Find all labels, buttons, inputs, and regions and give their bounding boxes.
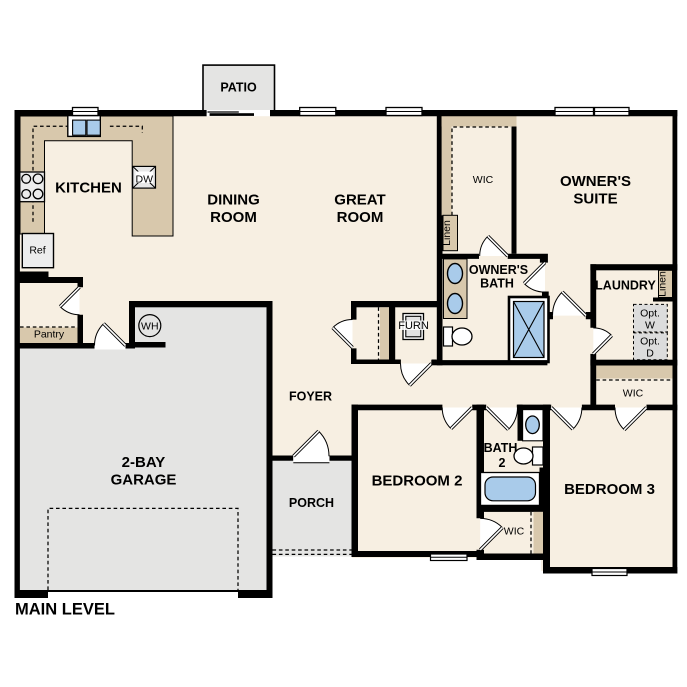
svg-text:DINING: DINING xyxy=(207,192,260,209)
svg-text:MAIN LEVEL: MAIN LEVEL xyxy=(15,601,115,619)
svg-text:GARAGE: GARAGE xyxy=(111,472,177,489)
svg-text:FURN: FURN xyxy=(398,320,429,332)
svg-text:PORCH: PORCH xyxy=(289,496,334,510)
svg-text:Ref: Ref xyxy=(29,245,45,257)
svg-text:SUITE: SUITE xyxy=(573,191,617,208)
svg-text:KITCHEN: KITCHEN xyxy=(55,180,122,197)
svg-text:GREAT: GREAT xyxy=(334,192,385,209)
svg-text:WH: WH xyxy=(141,321,159,333)
svg-text:LAUNDRY: LAUNDRY xyxy=(595,279,656,293)
svg-text:OWNER'S: OWNER'S xyxy=(469,263,528,277)
svg-text:Linen: Linen xyxy=(657,271,669,297)
svg-text:FOYER: FOYER xyxy=(289,390,332,404)
svg-text:ROOM: ROOM xyxy=(210,209,257,226)
svg-text:Pantry: Pantry xyxy=(34,329,65,341)
svg-text:Opt.: Opt. xyxy=(640,336,660,348)
svg-text:PATIO: PATIO xyxy=(220,81,257,95)
svg-text:WIC: WIC xyxy=(473,174,494,186)
svg-text:2: 2 xyxy=(499,456,506,470)
svg-text:W: W xyxy=(645,320,655,332)
svg-text:BEDROOM 3: BEDROOM 3 xyxy=(564,481,655,498)
svg-text:ROOM: ROOM xyxy=(337,209,384,226)
svg-text:WIC: WIC xyxy=(504,526,525,538)
svg-text:WIC: WIC xyxy=(623,388,644,400)
svg-text:BATH: BATH xyxy=(484,441,518,455)
svg-text:BEDROOM 2: BEDROOM 2 xyxy=(372,473,463,490)
svg-text:Opt.: Opt. xyxy=(640,308,660,320)
svg-text:D: D xyxy=(646,348,654,360)
svg-text:Linen: Linen xyxy=(441,220,453,246)
svg-text:OWNER'S: OWNER'S xyxy=(560,173,631,190)
svg-text:DW: DW xyxy=(136,174,154,186)
svg-text:2-BAY: 2-BAY xyxy=(122,454,166,471)
svg-text:BATH: BATH xyxy=(480,277,514,291)
